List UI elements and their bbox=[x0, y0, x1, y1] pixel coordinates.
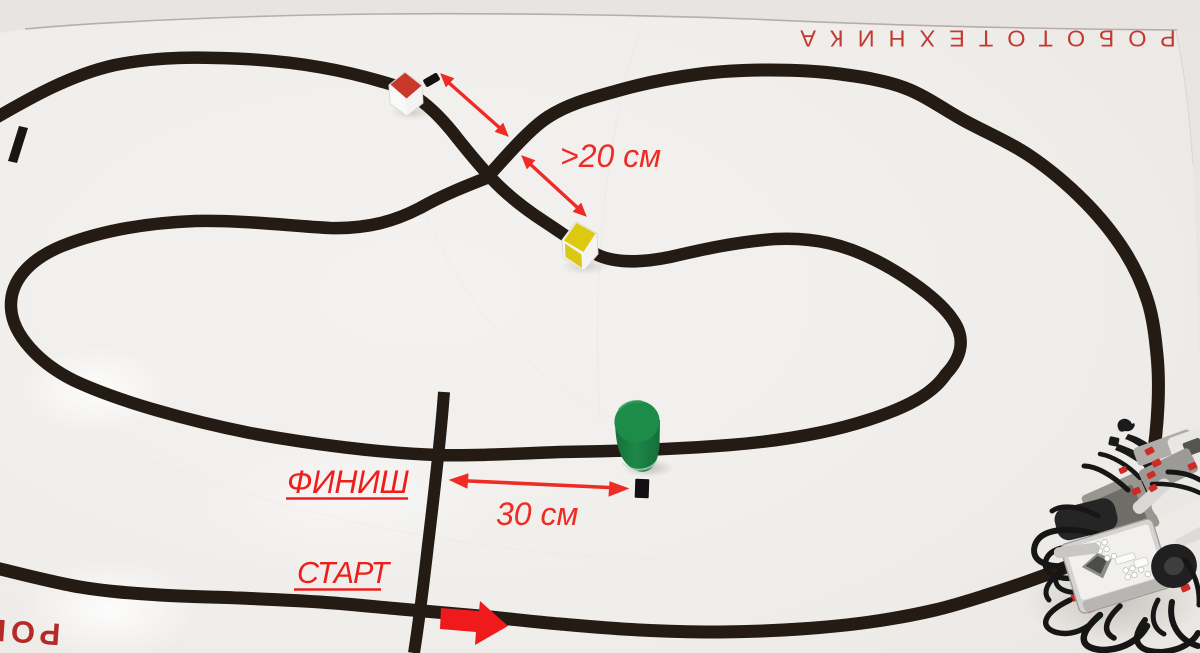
svg-text:ФИНИШ: ФИНИШ bbox=[287, 464, 409, 500]
svg-text:РОБ: РОБ bbox=[0, 611, 61, 652]
svg-text:30 см: 30 см bbox=[496, 496, 578, 532]
svg-text:РОБОТОТЕХНИКА: РОБОТОТЕХНИКА bbox=[786, 26, 1175, 52]
svg-text:>20 см: >20 см bbox=[560, 138, 661, 174]
svg-text:СТАРТ: СТАРТ bbox=[297, 556, 392, 590]
